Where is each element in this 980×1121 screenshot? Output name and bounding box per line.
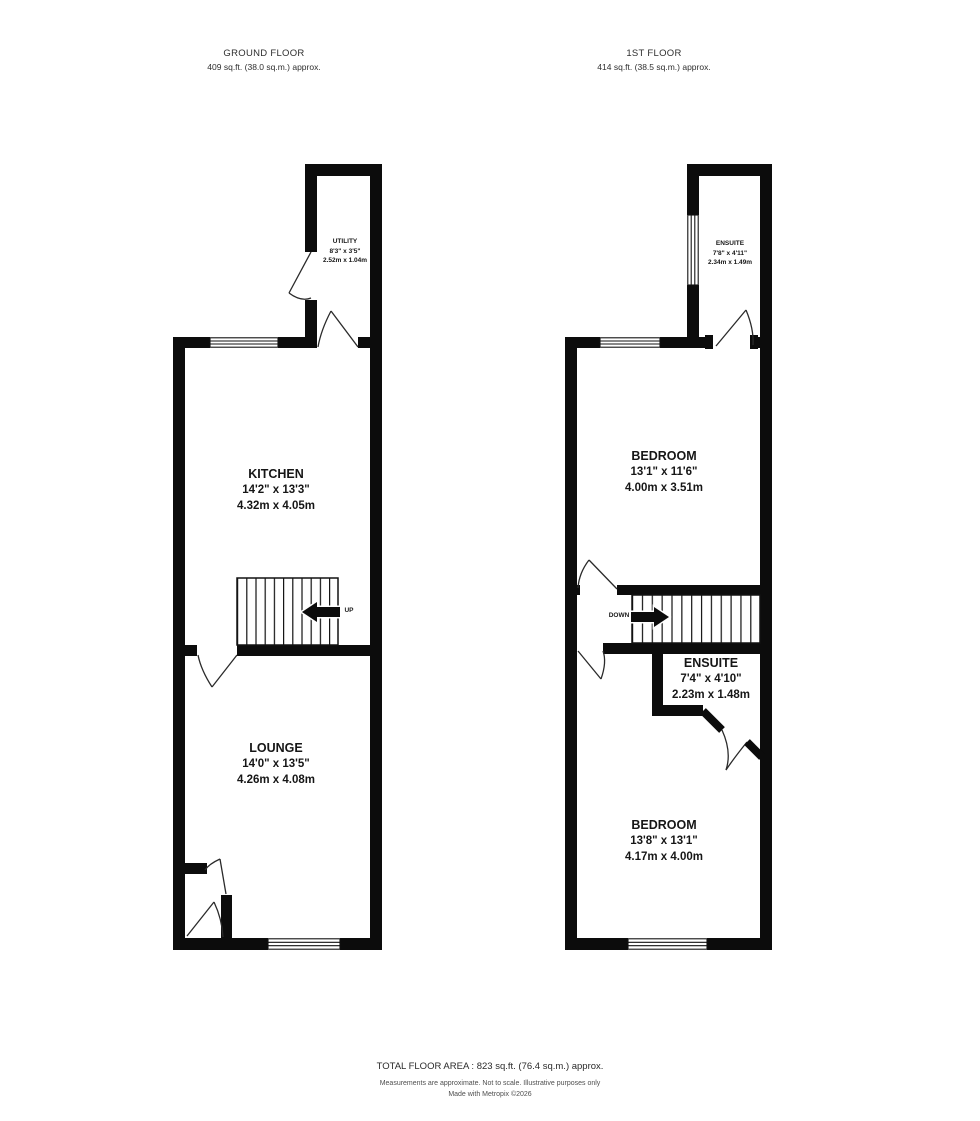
ground-floor-area: 409 sq.ft. (38.0 sq.m.) approx. bbox=[207, 62, 320, 72]
wall bbox=[278, 337, 317, 348]
wall bbox=[652, 705, 703, 716]
lounge-label: LOUNGE 14'0" x 13'5" 4.26m x 4.08m bbox=[237, 740, 315, 788]
window-glyph bbox=[688, 215, 698, 285]
wall bbox=[340, 938, 382, 950]
door-arc bbox=[289, 293, 311, 299]
window-glyph bbox=[210, 338, 278, 347]
door-arc bbox=[205, 859, 220, 870]
bedroom-2-label: BEDROOM 13'8" x 13'1" 4.17m x 4.00m bbox=[625, 817, 703, 865]
floorplan-drawing bbox=[0, 0, 980, 1121]
footer-credit: Made with Metropix ©2026 bbox=[448, 1091, 531, 1098]
door-arc bbox=[578, 560, 589, 588]
window-glyph bbox=[268, 939, 340, 949]
window-glyph bbox=[628, 939, 707, 949]
door-leaf bbox=[220, 859, 226, 894]
wall bbox=[707, 938, 772, 950]
door-jamb bbox=[705, 335, 713, 349]
window-glyph bbox=[600, 338, 660, 347]
wall bbox=[173, 337, 185, 950]
door-leaf bbox=[212, 655, 237, 687]
wall bbox=[687, 164, 772, 176]
wall bbox=[660, 337, 712, 348]
ground-floor-plan bbox=[173, 164, 382, 950]
wall bbox=[760, 164, 772, 950]
first-floor-header: 1ST FLOOR 414 sq.ft. (38.5 sq.m.) approx… bbox=[597, 48, 710, 72]
wall bbox=[185, 645, 197, 656]
ensuite-mid-label: ENSUITE 7'4" x 4'10" 2.23m x 1.48m bbox=[672, 655, 750, 703]
door-leaf bbox=[589, 560, 617, 589]
wall bbox=[652, 654, 663, 710]
door-leaf bbox=[578, 651, 601, 679]
door-arc bbox=[318, 311, 331, 347]
footer-disclaimer: Measurements are approximate. Not to sca… bbox=[380, 1080, 601, 1087]
total-floor-area: TOTAL FLOOR AREA : 823 sq.ft. (76.4 sq.m… bbox=[377, 1061, 604, 1072]
door-leaf bbox=[703, 711, 722, 730]
door-leaf bbox=[289, 252, 311, 293]
wall bbox=[617, 585, 760, 595]
wall bbox=[173, 938, 268, 950]
door-leaf bbox=[187, 902, 214, 936]
wall bbox=[603, 643, 760, 654]
door-jamb bbox=[750, 335, 758, 349]
first-floor-title: 1ST FLOOR bbox=[597, 48, 710, 59]
ensuite-top-label: ENSUITE 7'8" x 4'11" 2.34m x 1.49m bbox=[708, 239, 752, 268]
door-arc bbox=[198, 655, 212, 687]
stairs-down bbox=[631, 595, 760, 643]
down-label: DOWN bbox=[609, 612, 630, 619]
wall bbox=[358, 337, 370, 348]
door-leaf bbox=[331, 311, 358, 347]
wall bbox=[370, 164, 382, 950]
door-leaf bbox=[716, 310, 746, 346]
ground-floor-title: GROUND FLOOR bbox=[207, 48, 320, 59]
up-label: UP bbox=[344, 607, 353, 614]
door-arc bbox=[726, 742, 747, 770]
first-floor-area: 414 sq.ft. (38.5 sq.m.) approx. bbox=[597, 62, 710, 72]
wall bbox=[305, 176, 317, 252]
door-arc bbox=[722, 730, 728, 770]
wall bbox=[173, 863, 207, 874]
ground-floor-header: GROUND FLOOR 409 sq.ft. (38.0 sq.m.) app… bbox=[207, 48, 320, 72]
utility-label: UTILITY 8'3" x 3'5" 2.52m x 1.04m bbox=[323, 237, 367, 266]
door-leaf bbox=[747, 742, 762, 757]
door-arc bbox=[601, 651, 605, 679]
bedroom-1-label: BEDROOM 13'1" x 11'6" 4.00m x 3.51m bbox=[625, 448, 703, 496]
kitchen-label: KITCHEN 14'2" x 13'3" 4.32m x 4.05m bbox=[237, 466, 315, 514]
stairs-up bbox=[237, 578, 340, 645]
wall bbox=[565, 337, 577, 950]
door-leaves-thick bbox=[703, 711, 762, 757]
wall bbox=[687, 176, 699, 215]
wall bbox=[565, 938, 628, 950]
wall bbox=[237, 645, 382, 656]
floorplan-page: { "colors": { "wall": "#0c0c0c", "text":… bbox=[0, 0, 980, 1121]
